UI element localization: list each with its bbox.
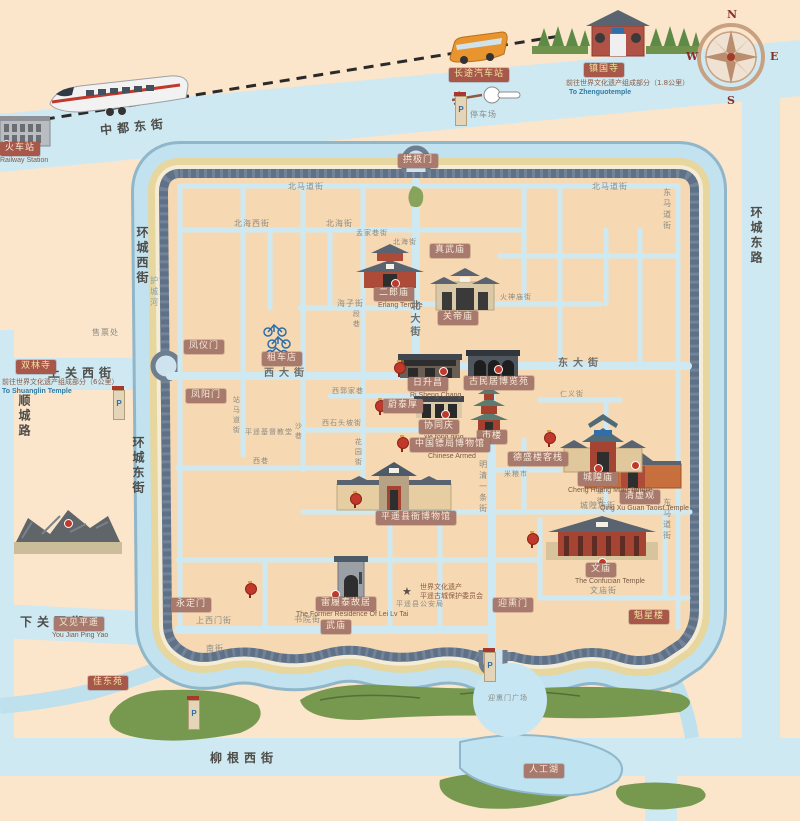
poi-label-chenghuang-temple: 城隍庙 — [578, 472, 618, 486]
train-illustration — [40, 68, 190, 124]
poi-label-confucian-temple: 文庙 — [586, 563, 616, 577]
red-lantern-icon — [350, 493, 362, 505]
text-world-heritage-line1: 世界文化遗产 — [420, 583, 462, 591]
poi-label-kuixing-tower: 魁星楼 — [629, 610, 669, 624]
street-name-huoshenmiao: 火神庙街 — [500, 293, 532, 301]
red-lantern-icon — [544, 432, 556, 444]
poi-eng-confucian-temple: The Confucian Temple — [575, 578, 645, 586]
location-dot — [441, 410, 450, 419]
street-name-beimadao: 北马道街 — [288, 182, 324, 192]
street-name-dongdajie: 东大街 — [558, 354, 603, 369]
street-name-xidajie: 西大街 — [264, 364, 309, 379]
street-name-miliangshi: 米粮市 — [504, 470, 528, 478]
rishengchang-illustration — [398, 350, 462, 380]
poi-label-deshenglou-inn: 德盛楼客栈 — [508, 452, 568, 466]
text-police-bureau: 平遥县公安局 — [396, 600, 444, 608]
street-name-beihai: 北海街 — [326, 219, 353, 229]
poi-label-bike-rental: 租车店 — [262, 352, 302, 366]
red-lantern-icon — [527, 533, 539, 545]
street-name-xishitoupo: 西石头坡街 — [322, 419, 362, 427]
poi-label-erlang-temple: 二郎庙 — [374, 287, 414, 301]
poi-label-zhenguo-temple: 镇国寺 — [584, 63, 624, 77]
erlang-temple-illustration — [352, 240, 428, 292]
poi-eng-chenghuang-temple: Cheng Huang Miao Temple — [568, 487, 653, 495]
street-name-wenmiao-street: 文庙街 — [590, 586, 617, 596]
street-name-duan-lane: 段巷 — [352, 310, 360, 330]
compass-south: S — [727, 94, 735, 107]
street-name-zhanmadao: 站马道街 — [232, 396, 240, 436]
poi-label-bus-station: 长途汽车站 — [449, 68, 509, 82]
parking-tower-icon: P — [113, 390, 125, 420]
street-name-xiguojia-lane: 西郭家巷 — [332, 387, 364, 395]
compass-west: W — [686, 50, 698, 63]
parking-tower-icon: P — [484, 652, 496, 682]
compass-north: N — [727, 8, 737, 21]
market-tower-illustration — [456, 384, 522, 434]
poi-eng-leilvtai-residence: The Former Residence Of Lei Lv Tai — [296, 611, 408, 619]
red-lantern-icon — [394, 362, 406, 374]
poi-eng-youjianpingyao: You Jian Ping Yao — [52, 632, 108, 640]
road-liugen-west-street — [0, 738, 800, 776]
poi-eng-zhenguo-temple: To Zhenguotemple — [569, 89, 631, 97]
poi-eng-erlang-temple: Erlang Temple — [378, 302, 423, 310]
text-ticket-office: 售票处 — [92, 328, 119, 338]
street-name-dongmadao: 东马道街 — [662, 188, 672, 232]
poi-label-artificial-lake: 人工湖 — [524, 764, 564, 778]
text-christian-church: 平遥基督教堂 — [245, 428, 293, 436]
street-name-mengjia-lane: 孟家巷街 — [356, 229, 388, 237]
poi-label-leilvtai-residence: 雷履泰故居 — [316, 597, 376, 611]
gate-label-yingxunmen: 迎熏门 — [493, 598, 533, 612]
street-name-haizi-street: 海子街 — [337, 299, 364, 309]
text-yingxun-square: 迎熏门广场 — [488, 694, 528, 702]
parking-tower-icon: P — [455, 96, 467, 126]
compass-rose — [696, 22, 766, 92]
location-dot — [439, 367, 448, 376]
street-name-moat: 护城河 — [149, 276, 159, 309]
poi-label-youjianpingyao: 又见平遥 — [54, 617, 104, 631]
street-name-shangximen-street: 上西门街 — [196, 616, 232, 626]
street-name-huayuan-street: 花园街 — [354, 438, 362, 468]
location-dot — [494, 365, 503, 374]
poi-eng-shuanglin-temple: To Shuanglin Temple — [2, 388, 72, 396]
location-dot — [64, 519, 73, 528]
street-name-renyi-street: 仁义街 — [560, 390, 584, 398]
gate-label-yongdingmen: 永定门 — [171, 598, 211, 612]
poi-label-weitaihou: 蔚泰厚 — [383, 399, 423, 413]
text-parking-lot: 停车场 — [470, 110, 497, 120]
red-lantern-icon — [245, 583, 257, 595]
confucian-temple-illustration — [540, 508, 664, 562]
bus-illustration — [446, 28, 510, 70]
street-name-shuncheng-road: 顺城路 — [16, 394, 33, 439]
poi-label-shuanglin-temple: 双林寺 — [16, 360, 56, 374]
red-lantern-icon — [397, 437, 409, 449]
poi-label-biaoju-museum: 中国镖局博物馆 — [410, 438, 490, 452]
poi-label-guminju-museum: 古民居博览苑 — [464, 376, 534, 390]
poi-label-zhenwu-temple: 真武庙 — [430, 244, 470, 258]
poi-eng-qingxuguan: Qing Xu Guan Taoist Temple — [600, 505, 689, 513]
street-name-sha-lane: 沙巷 — [294, 422, 302, 442]
guandi-temple-archway-illustration — [428, 262, 502, 312]
street-name-nanjie: 南街 — [206, 644, 224, 654]
guminju-museum-illustration — [466, 346, 520, 378]
street-name-beimadao: 北马道街 — [592, 182, 628, 192]
pingyao-tourist-map: N E S W — [0, 0, 800, 821]
star-icon: ★ — [402, 585, 412, 598]
street-name-mingqing-street: 明清一条街 — [478, 460, 488, 515]
street-name-liugen-west: 柳根西街 — [210, 749, 278, 766]
gate-label-fengyangmen: 凤阳门 — [186, 389, 226, 403]
parking-tower-icon: P — [188, 700, 200, 730]
poi-label-county-office: 平遥县衙博物馆 — [376, 511, 456, 525]
trees-left — [532, 26, 590, 54]
road-huancheng-east — [742, 70, 780, 742]
compass-east: E — [770, 50, 778, 63]
poi-eng-biaoju-museum: Chinese Armed — [428, 453, 476, 461]
poi-note-shuanglin-temple: 前往世界文化遗产组成部分（6公里） — [2, 378, 118, 386]
poi-label-jiadongyuan: 佳东苑 — [88, 676, 128, 690]
street-name-beihai-west: 北海西街 — [234, 219, 270, 229]
street-name-huancheng-east-street: 环城东街 — [130, 436, 147, 496]
poi-label-guandi-temple: 关帝庙 — [438, 311, 478, 325]
street-name-xi-lane: 西巷 — [253, 457, 269, 465]
street-name-huancheng-east-road: 环城东路 — [748, 206, 765, 266]
poi-label-railway-station: 火车站 — [0, 142, 40, 156]
text-world-heritage-line2: 平遥古城保护委员会 — [420, 592, 483, 600]
poi-note-zhenguo-temple: 前往世界文化遗产组成部分（1.8公里） — [566, 79, 689, 87]
poi-label-xietongqing: 协同庆 — [419, 420, 459, 434]
zhenguo-temple-illustration — [530, 4, 702, 62]
gate-label-fengyimen: 凤仪门 — [184, 340, 224, 354]
street-name-beihai-2: 北海街 — [393, 238, 417, 246]
poi-label-rishengchang: 日升昌 — [408, 377, 448, 391]
location-dot — [631, 461, 640, 470]
poi-eng-railway-station: Railway Station — [0, 157, 48, 165]
gate-label-gongjimen: 拱极门 — [398, 154, 438, 168]
poi-label-wumiao: 武庙 — [321, 620, 351, 634]
